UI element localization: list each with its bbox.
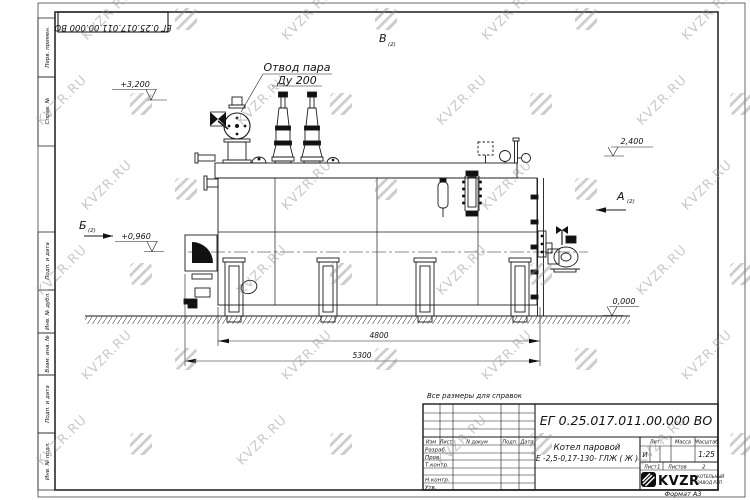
- feed-pump: [538, 226, 580, 272]
- margin-label: Справ. №: [45, 97, 51, 124]
- tb-col-podp: Подп.: [502, 440, 517, 446]
- rear-fittings: [478, 138, 531, 163]
- svg-text:+3,200: +3,200: [120, 80, 150, 89]
- dimension-4800: 4800: [218, 307, 540, 346]
- svg-text:Б: Б: [79, 219, 87, 232]
- tb-col-izm: Изм: [426, 440, 436, 446]
- elevation-mark-2400: 2,400: [604, 137, 653, 156]
- tb-lit-label: Лит.: [649, 440, 662, 446]
- drawing-sheet: Перв. примен. Справ. № Подп. и дата Инв.…: [0, 0, 750, 500]
- tb-product-code: Е -2,5-0,17-130- ГЛЖ ( Ж ): [536, 454, 638, 463]
- tb-row-razrab: Разраб.: [425, 448, 447, 454]
- elevation-mark-3200: +3,200: [112, 80, 167, 100]
- tb-row-ncontr: Н.контр.: [425, 477, 450, 483]
- tb-massa-label: Масса: [675, 440, 691, 446]
- svg-text:4800: 4800: [369, 331, 388, 340]
- margin-label: Инв. № подл.: [45, 442, 51, 480]
- tb-col-list: Лист: [439, 440, 454, 446]
- boiler-body: [218, 178, 537, 305]
- boiler-side-view: [85, 92, 630, 324]
- burner-box: [184, 235, 217, 308]
- svg-text:(2): (2): [88, 228, 96, 234]
- elevation-mark-0000: 0,000: [603, 297, 639, 316]
- svg-text:(2): (2): [627, 199, 635, 205]
- tb-product-name: Котел паровой: [554, 443, 621, 453]
- tb-lit-value: И: [642, 451, 648, 459]
- steam-outlet-callout: Отвод пара Ду 200: [241, 61, 332, 112]
- rear-ladder: [531, 178, 544, 316]
- view-label-right: А (2): [596, 190, 635, 213]
- company-logo-text: KVZR: [658, 474, 700, 489]
- company-sub2: ЗАВОД РЭП: [697, 480, 723, 485]
- handwheel-icon: [210, 112, 226, 126]
- svg-text:0,000: 0,000: [613, 297, 636, 306]
- steam-outlet-line1: Отвод пара: [263, 61, 330, 74]
- svg-text:(2): (2): [388, 42, 396, 48]
- view-arrow-right-icon: [84, 233, 113, 238]
- view-arrow-left-icon: [596, 207, 626, 212]
- annotations: Отвод пара Ду 200 В (2) А (2) Б (2): [79, 32, 653, 400]
- tb-row-tcontr: Т.контр.: [425, 462, 449, 468]
- svg-text:5300: 5300: [352, 351, 371, 360]
- margin-column-labels: Перв. примен. Справ. № Подп. и дата Инв.…: [45, 26, 51, 480]
- elevation-mark-0960: +0,960: [115, 232, 164, 252]
- ground: [85, 316, 630, 324]
- tb-doc-number: ЕГ 0.25.017.011.00.000 ВО: [540, 413, 713, 428]
- top-stamp-number: ЕГ 0.25.017.011.00.000 ВО: [54, 22, 172, 32]
- margin-label: Подп. и дата: [45, 385, 51, 423]
- margin-label: Взам. инв. №: [45, 335, 51, 373]
- margin-label: Подп. и дата: [45, 242, 51, 280]
- tb-scale-value: 1:25: [698, 450, 715, 459]
- panel-joints: [218, 178, 537, 305]
- svg-text:А: А: [616, 190, 625, 203]
- margin-label: Перв. примен.: [45, 26, 51, 68]
- safety-valve: [272, 92, 323, 163]
- handhole: [239, 278, 258, 296]
- dome-fitting: [252, 157, 339, 163]
- tb-row-prov: Пров.: [425, 455, 441, 461]
- drawing-canvas: Перв. примен. Справ. № Подп. и дата Инв.…: [0, 0, 750, 500]
- margin-label: Инв. № дубл.: [45, 292, 51, 330]
- general-note: Все размеры для справок: [427, 392, 523, 400]
- view-label-left: Б (2): [79, 219, 113, 239]
- svg-text:2,400: 2,400: [621, 137, 644, 146]
- tb-row-utv: Утв.: [425, 485, 437, 491]
- tb-scale-label: Масштаб: [695, 440, 719, 446]
- tb-sheets-value: 2: [702, 464, 706, 470]
- tb-sheet-label: Лист: [643, 464, 658, 470]
- tb-col-ndoc: N докум: [466, 440, 488, 446]
- tb-sheets-label: Листов: [667, 464, 687, 470]
- top-stamp: ЕГ 0.25.017.011.00.000 ВО: [54, 12, 172, 32]
- format-note: Формат А3: [664, 490, 701, 498]
- svg-text:В: В: [379, 32, 387, 45]
- company-logo-icon: [641, 472, 656, 487]
- tb-col-data: Дата: [520, 440, 534, 446]
- svg-text:+0,960: +0,960: [121, 232, 151, 241]
- steam-valve: [210, 97, 251, 163]
- title-block: ЕГ 0.25.017.011.00.000 ВО Изм Лист N док…: [423, 404, 725, 498]
- company-sub1: КОТЕЛЬНЫЙ: [697, 474, 725, 479]
- view-label-top: В (2): [379, 32, 396, 48]
- steam-outlet-line2: Ду 200: [276, 74, 317, 87]
- tb-sheet-value: 1: [657, 464, 661, 470]
